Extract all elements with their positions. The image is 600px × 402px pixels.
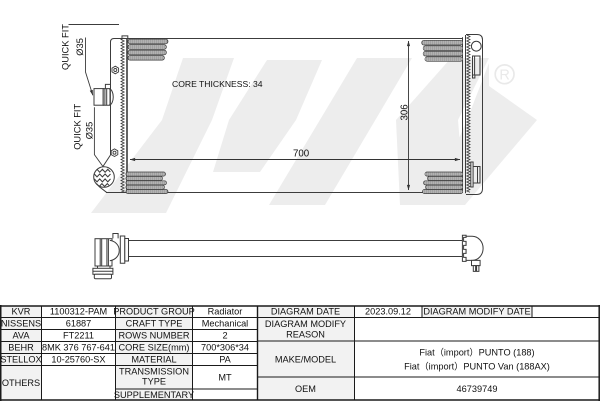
svg-text:STELLOX: STELLOX <box>0 355 41 365</box>
svg-text:BEHR: BEHR <box>8 343 34 353</box>
svg-text:Ø35: Ø35 <box>85 122 95 140</box>
svg-text:DIAGRAM DATE: DIAGRAM DATE <box>271 307 340 317</box>
svg-text:MT: MT <box>218 373 232 383</box>
svg-text:Fiat（import）PUNTO Van (188AX): Fiat（import）PUNTO Van (188AX) <box>404 362 550 372</box>
svg-text:Radiator: Radiator <box>208 307 243 317</box>
svg-text:FT2211: FT2211 <box>63 331 94 341</box>
svg-text:Fiat（import）PUNTO (188): Fiat（import）PUNTO (188) <box>419 348 534 358</box>
svg-text:MAKE/MODEL: MAKE/MODEL <box>275 355 336 365</box>
svg-text:QUICK FIT: QUICK FIT <box>61 24 71 70</box>
svg-text:TYPE: TYPE <box>142 377 166 387</box>
svg-text:ROWS NUMBER: ROWS NUMBER <box>119 331 190 341</box>
svg-text:8MK 376 767-641: 8MK 376 767-641 <box>42 343 115 353</box>
svg-text:1100312-PAM: 1100312-PAM <box>50 307 107 317</box>
svg-text:AVA: AVA <box>12 331 30 341</box>
svg-text:OTHERS: OTHERS <box>2 378 40 388</box>
svg-text:PRODUCT GROUP: PRODUCT GROUP <box>113 307 195 317</box>
svg-text:NISSENS: NISSENS <box>1 319 41 329</box>
svg-text:PA: PA <box>219 355 231 365</box>
svg-text:DIAGRAM MODIFY DATE: DIAGRAM MODIFY DATE <box>423 307 530 317</box>
svg-text:DIAGRAM MODIFY: DIAGRAM MODIFY <box>265 319 346 329</box>
svg-text:306: 306 <box>400 104 411 120</box>
svg-text:2: 2 <box>222 331 227 341</box>
svg-text:TRANSMISSION: TRANSMISSION <box>119 367 189 377</box>
svg-text:CORE THICKNESS: 34: CORE THICKNESS: 34 <box>172 79 263 89</box>
svg-text:2023.09.12: 2023.09.12 <box>365 307 411 317</box>
svg-text:46739749: 46739749 <box>457 384 498 394</box>
svg-text:REASON: REASON <box>286 330 325 340</box>
svg-text:MATERIAL: MATERIAL <box>131 355 176 365</box>
svg-text:700: 700 <box>293 149 310 160</box>
svg-text:CRAFT TYPE: CRAFT TYPE <box>126 319 183 329</box>
svg-text:Ø35: Ø35 <box>75 38 85 56</box>
svg-text:10-25760-SX: 10-25760-SX <box>51 355 105 365</box>
svg-text:61887: 61887 <box>66 319 92 329</box>
svg-text:SUPPLEMENTARY: SUPPLEMENTARY <box>114 390 194 400</box>
svg-text:700*306*34: 700*306*34 <box>201 343 249 353</box>
svg-text:Mechanical: Mechanical <box>202 319 248 329</box>
svg-text:QUICK FIT: QUICK FIT <box>72 104 82 150</box>
svg-text:OEM: OEM <box>295 384 316 394</box>
svg-text:R: R <box>499 68 509 84</box>
svg-text:CORE SIZE(mm): CORE SIZE(mm) <box>119 343 190 353</box>
svg-text:KVR: KVR <box>12 307 31 317</box>
